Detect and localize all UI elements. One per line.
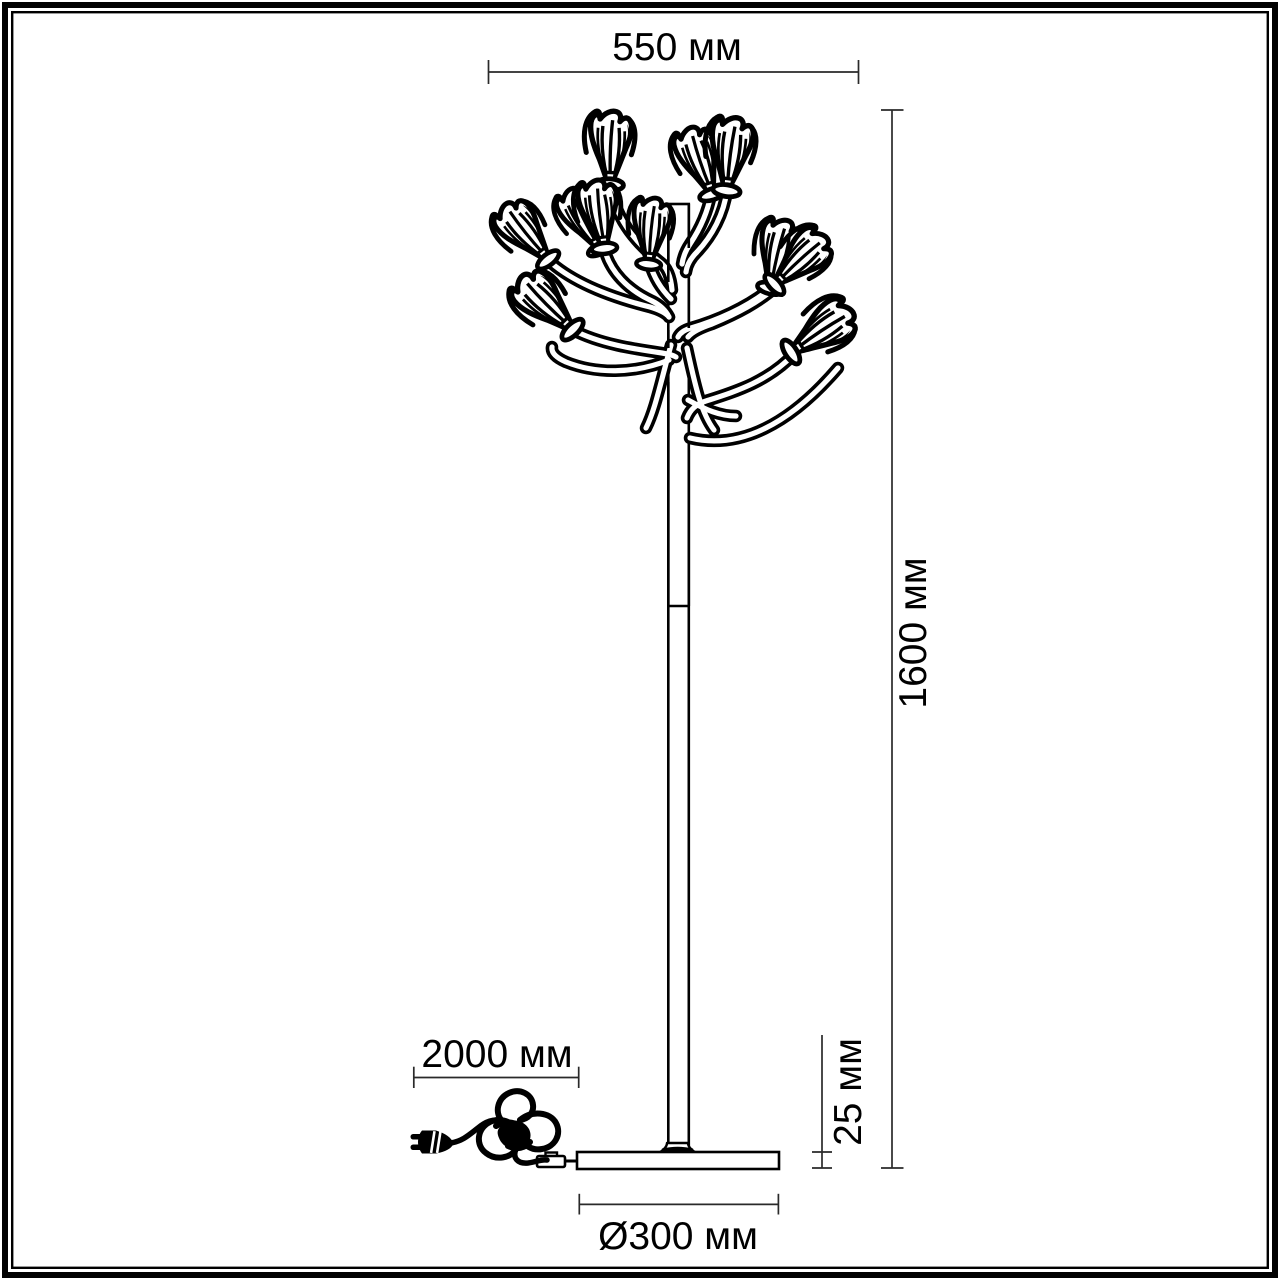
svg-text:2000 мм: 2000 мм <box>421 1033 572 1076</box>
svg-text:25 мм: 25 мм <box>827 1038 870 1146</box>
svg-text:550 мм: 550 мм <box>612 26 742 69</box>
svg-text:Ø300 мм: Ø300 мм <box>598 1215 758 1258</box>
svg-text:1600 мм: 1600 мм <box>892 557 935 708</box>
